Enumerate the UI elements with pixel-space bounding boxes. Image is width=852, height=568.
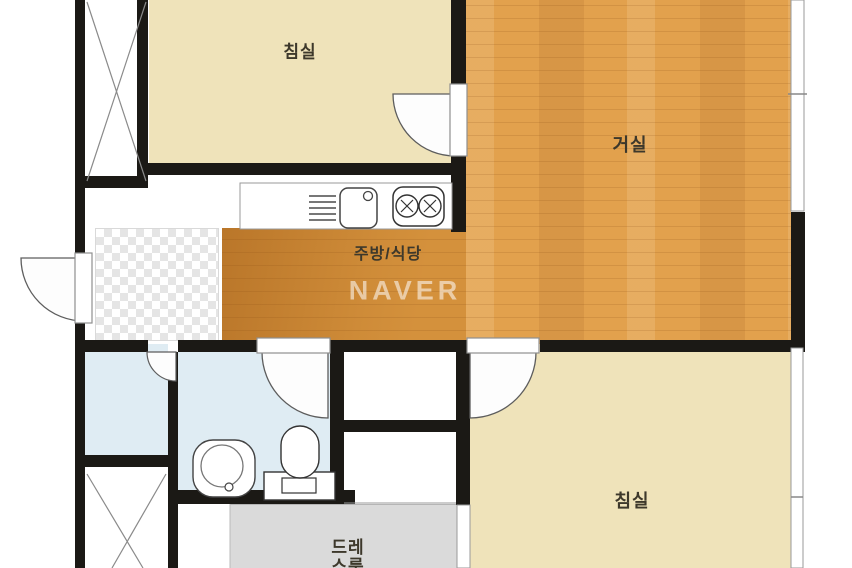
bedroom-top-door [393,84,467,156]
label-dressing-room: 드레 스룸 [331,538,364,568]
bedroom-bottom-window [791,348,803,568]
label-bedroom-top: 침실 [283,38,316,63]
living-room-window [788,0,807,211]
label-living-room: 거실 [612,131,647,157]
bedroom-bottom-door [467,338,539,418]
bathroom-door [257,338,330,418]
naver-watermark: NAVER [349,276,462,307]
kitchen-counter [240,183,452,229]
wash-basin-icon [193,440,255,497]
label-dressing-line2: 스룸 [331,557,364,568]
balcony-window-x-top-left-icon [87,2,146,181]
utility-door [147,352,176,381]
gas-stove-icon [393,187,444,226]
kitchen-sink-icon [340,188,377,228]
label-dressing-line1: 드레 [331,538,364,557]
label-bedroom-bottom: 침실 [614,487,649,513]
toilet-icon [264,426,335,500]
label-kitchen-dining: 주방/식당 [354,240,422,264]
balcony-window-x-bottom-left-icon [87,474,166,568]
entry-door [21,253,92,323]
floor-plan: 침실 거실 주방/식당 침실 드레 스룸 NAVER [0,0,852,568]
dressing-room-sliding-door [457,505,470,568]
